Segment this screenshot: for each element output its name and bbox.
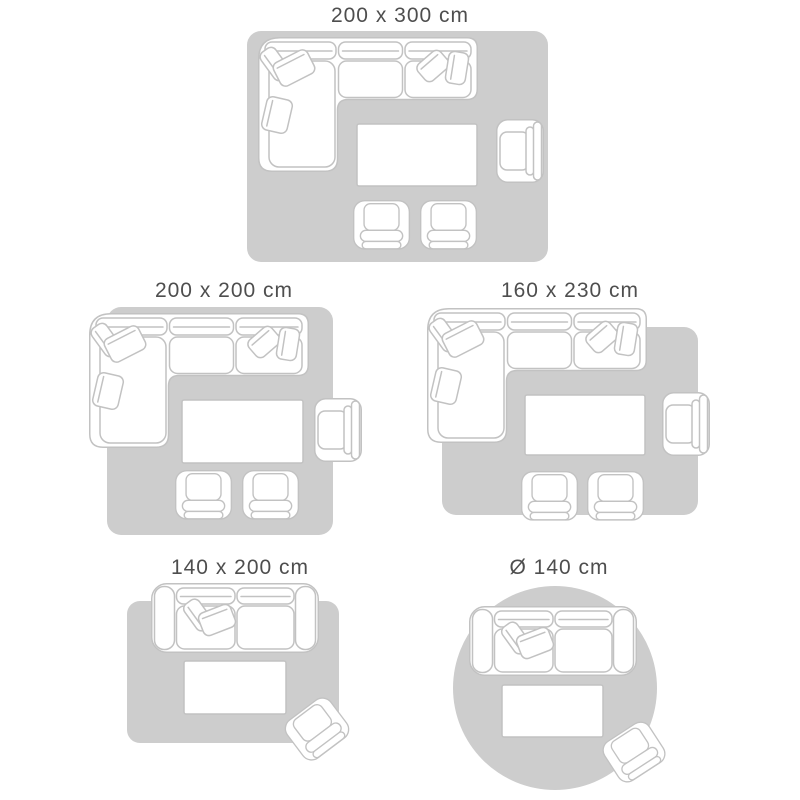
- coffee-table-icon: [182, 400, 303, 463]
- armchair-icon: [663, 393, 710, 456]
- rug-size-guide: 200 x 300 cm 200 x 200 cm 160 x 230 cm 1…: [0, 0, 800, 800]
- panel-160x230: [427, 309, 710, 520]
- panel-200x200: [89, 307, 362, 535]
- coffee-table-icon: [184, 661, 286, 714]
- footstool-chair-icon: [243, 471, 299, 519]
- footstool-chair-icon: [421, 201, 477, 249]
- two-seater-sofa-icon: [152, 584, 319, 653]
- size-guide-figure: [0, 0, 800, 800]
- footstool-chair-icon: [354, 201, 410, 249]
- coffee-table-icon: [502, 685, 603, 737]
- armchair-icon: [497, 120, 544, 183]
- footstool-chair-icon: [176, 471, 232, 519]
- panel-200x300: [247, 31, 548, 262]
- two-seater-sofa-icon: [470, 607, 637, 676]
- coffee-table-icon: [525, 395, 645, 455]
- armchair-icon: [315, 399, 362, 462]
- panel-round-140: [453, 586, 669, 790]
- coffee-table-icon: [357, 124, 477, 186]
- panel-140x200: [127, 584, 353, 765]
- footstool-chair-icon: [522, 472, 578, 520]
- footstool-chair-icon: [588, 472, 644, 520]
